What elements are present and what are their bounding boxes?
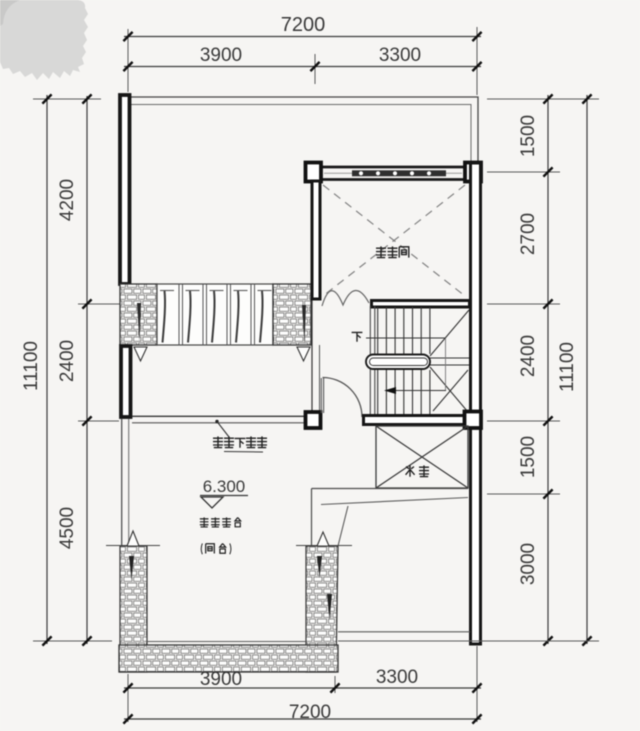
svg-text:7200: 7200 [281, 14, 326, 36]
svg-text:11100: 11100 [557, 342, 578, 392]
svg-text:11100: 11100 [21, 341, 42, 391]
svg-text:4200: 4200 [57, 179, 78, 221]
svg-text:2700: 2700 [518, 213, 539, 255]
svg-text:7200: 7200 [289, 702, 331, 723]
svg-text:3000: 3000 [518, 543, 539, 585]
svg-text:3300: 3300 [376, 667, 418, 688]
svg-text:1500: 1500 [518, 115, 539, 157]
svg-text:3300: 3300 [379, 45, 421, 66]
svg-text:2400: 2400 [57, 340, 78, 382]
svg-text:4500: 4500 [57, 507, 78, 549]
svg-text:6.300: 6.300 [203, 477, 246, 496]
svg-text:1500: 1500 [518, 436, 539, 478]
svg-text:2400: 2400 [518, 335, 539, 377]
svg-text:3900: 3900 [200, 45, 242, 66]
